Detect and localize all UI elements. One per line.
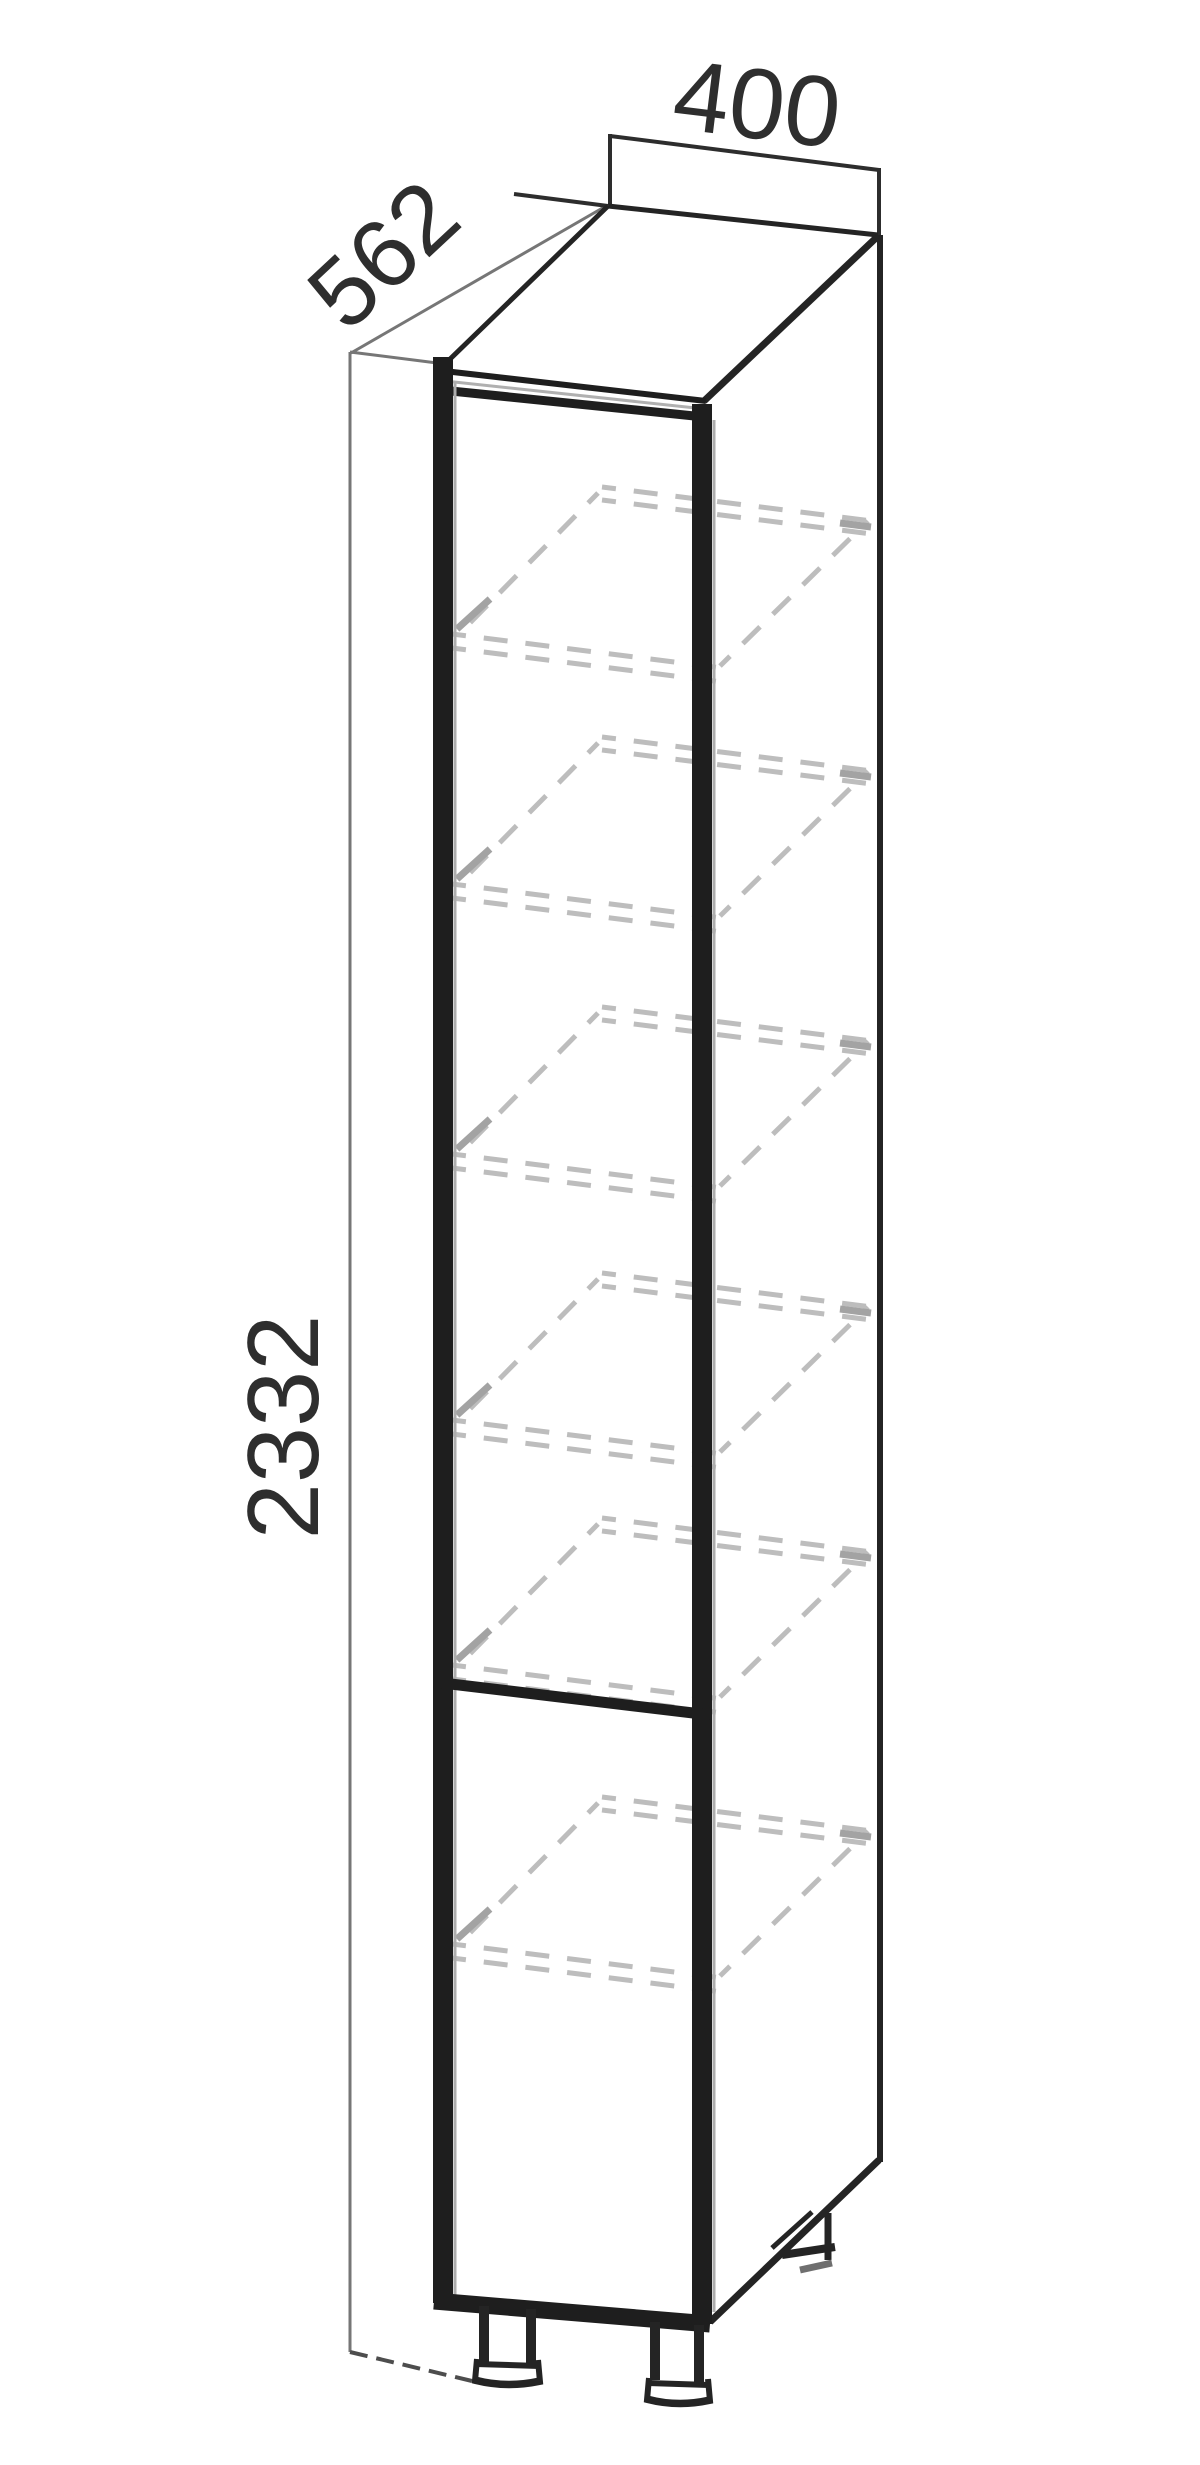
- svg-text:400: 400: [668, 39, 847, 171]
- svg-text:2332: 2332: [228, 1315, 340, 1540]
